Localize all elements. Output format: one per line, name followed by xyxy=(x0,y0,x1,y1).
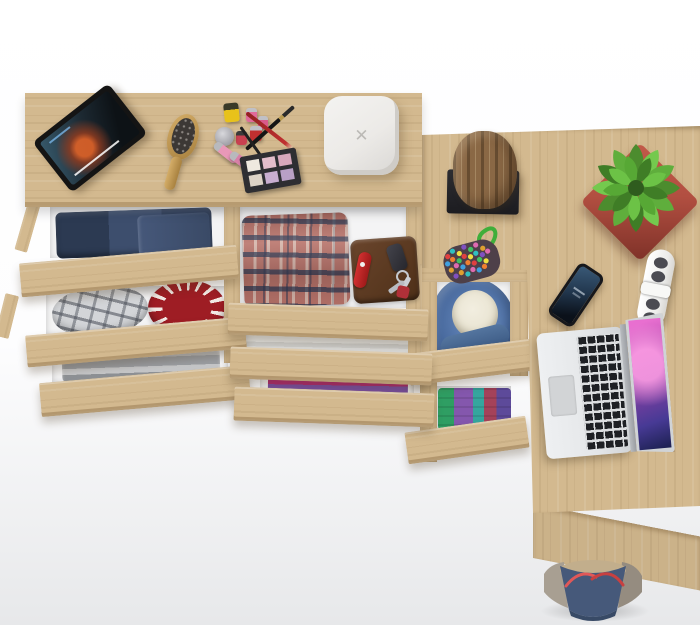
tablet-screen xyxy=(39,90,140,185)
dresser-leg xyxy=(14,201,40,253)
power-socket xyxy=(653,256,669,269)
drawer-front xyxy=(233,387,434,428)
laptop xyxy=(535,311,675,464)
eyeshadow-pan xyxy=(264,171,279,184)
hairbrush-bristles xyxy=(168,115,199,157)
power-strip-band xyxy=(640,281,672,299)
potted-plant xyxy=(563,122,700,250)
yellow-nail-polish xyxy=(223,102,240,122)
tablet-ui-bar xyxy=(74,140,119,176)
dresser-leg xyxy=(0,293,19,339)
dresser-top-edge xyxy=(25,202,422,207)
beaded-pouch xyxy=(438,226,510,288)
eyeshadow-pan xyxy=(246,159,261,172)
tablet xyxy=(40,90,140,186)
red-key-tag xyxy=(396,285,410,299)
knife-emblem xyxy=(360,262,365,267)
white-square-charger: ✕ xyxy=(324,96,399,175)
hairbrush-head xyxy=(162,110,204,162)
furniture-render-scene: ✕ xyxy=(0,0,700,625)
tablet-body xyxy=(32,83,147,193)
x-logo-icon: ✕ xyxy=(354,126,368,146)
eyeshadow-pan xyxy=(280,168,295,181)
power-socket xyxy=(645,297,661,310)
eyeshadow-pan xyxy=(278,153,293,166)
laptop-trackpad xyxy=(548,375,577,417)
eyeshadow-pan xyxy=(249,174,264,187)
plaid-shirt xyxy=(241,212,350,308)
power-socket xyxy=(650,270,666,283)
tablet-ui-dot xyxy=(49,126,71,144)
eyeshadow-pan xyxy=(262,156,277,169)
hairbrush-handle xyxy=(163,155,183,191)
tote-bag xyxy=(536,546,650,625)
log-decor xyxy=(453,131,517,209)
